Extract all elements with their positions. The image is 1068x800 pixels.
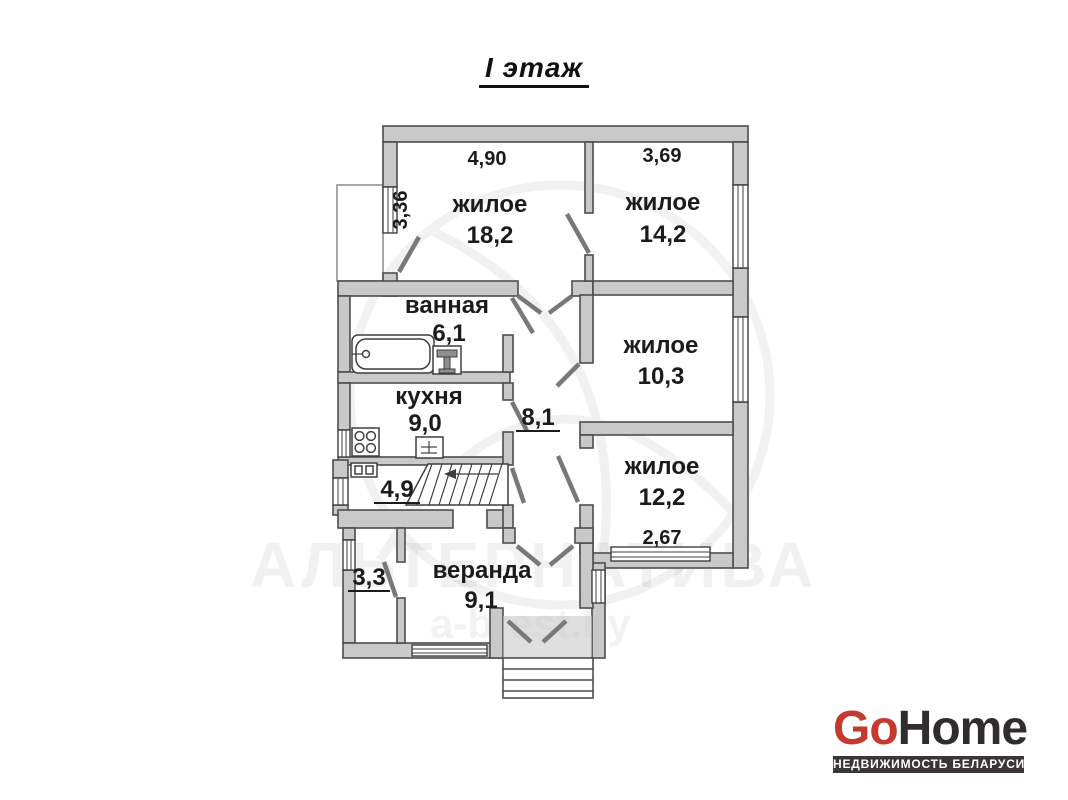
room-label-veranda: веранда	[433, 557, 533, 584]
entrance-steps	[503, 658, 593, 698]
door-leaf	[550, 546, 573, 565]
wall	[580, 435, 593, 448]
wall	[333, 460, 348, 478]
wall	[580, 543, 593, 608]
room-area-small: 3,3	[352, 564, 385, 591]
wall	[338, 296, 350, 372]
wall	[383, 126, 748, 142]
room-label-bathroom: ванная	[405, 292, 489, 319]
wall	[503, 335, 513, 372]
wall	[397, 598, 405, 643]
wall	[733, 142, 748, 185]
wall	[503, 528, 515, 543]
wall	[585, 142, 593, 213]
wall	[585, 255, 593, 281]
door-leaf	[549, 296, 572, 313]
stairs-icon	[406, 464, 508, 505]
page: АЛЬТЕРНАТИВА a-brest.by I этаж	[0, 0, 1068, 800]
window	[333, 478, 348, 505]
stove-icon	[352, 428, 379, 456]
counter-icon	[351, 463, 377, 477]
room-label-living4: жилое	[624, 453, 700, 480]
wall	[503, 432, 513, 465]
room-label-kitchen: кухня	[395, 383, 463, 410]
room-area-living2: 14,2	[640, 221, 687, 248]
logo-wordmark: GoHome	[833, 704, 1028, 754]
window	[592, 570, 605, 603]
door-leaf	[567, 214, 589, 253]
door-leaf	[512, 468, 524, 503]
dim-label: 2,67	[643, 527, 682, 549]
room-area-hall: 8,1	[521, 404, 554, 431]
dim-label: 3,69	[643, 145, 682, 167]
sink-icon	[416, 437, 443, 458]
room-area-living3: 10,3	[638, 363, 685, 390]
wall	[503, 383, 513, 400]
wall	[575, 528, 593, 543]
floor-plan: 4,90 3,69 3,36 2,67 жилое 18,2 жилое 14,…	[0, 0, 1068, 800]
window	[412, 645, 487, 656]
window	[733, 185, 748, 268]
wall	[338, 510, 453, 528]
dim-label: 4,90	[468, 148, 507, 170]
wall	[580, 422, 733, 435]
room-area-stairs: 4,9	[380, 476, 413, 503]
toilet-icon	[433, 346, 461, 374]
room-label-living2: жилое	[625, 189, 701, 216]
logo-tagline-bar: НЕДВИЖИМОСТЬ БЕЛАРУСИ	[833, 756, 1024, 773]
wall	[733, 268, 748, 317]
room-label-living3: жилое	[623, 332, 699, 359]
wall	[490, 608, 503, 658]
logo-go: Go	[833, 702, 898, 755]
wall	[580, 295, 593, 363]
window	[338, 430, 350, 457]
gohome-logo: GoHome НЕДВИЖИМОСТЬ БЕЛАРУСИ	[833, 704, 1028, 773]
room-area-living4: 12,2	[639, 484, 686, 511]
bathtub-icon	[352, 335, 434, 373]
room-label-living1: жилое	[452, 191, 528, 218]
room-area-bathroom: 6,1	[432, 320, 465, 347]
door-leaf	[558, 456, 578, 502]
room-area-veranda: 9,1	[464, 587, 497, 614]
wall	[383, 142, 397, 187]
wall	[338, 383, 350, 430]
wall	[593, 281, 733, 295]
door-leaf	[557, 364, 579, 386]
window	[733, 317, 748, 402]
wall	[397, 528, 405, 562]
wall	[733, 402, 748, 568]
room-area-kitchen: 9,0	[408, 410, 441, 437]
window	[611, 547, 710, 561]
logo-home: Home	[898, 702, 1027, 755]
wall	[343, 528, 355, 540]
dim-label: 3,36	[390, 191, 412, 230]
annex-outline	[337, 185, 383, 281]
room-area-living1: 18,2	[467, 222, 514, 249]
wall	[503, 505, 513, 528]
wall	[572, 281, 593, 296]
